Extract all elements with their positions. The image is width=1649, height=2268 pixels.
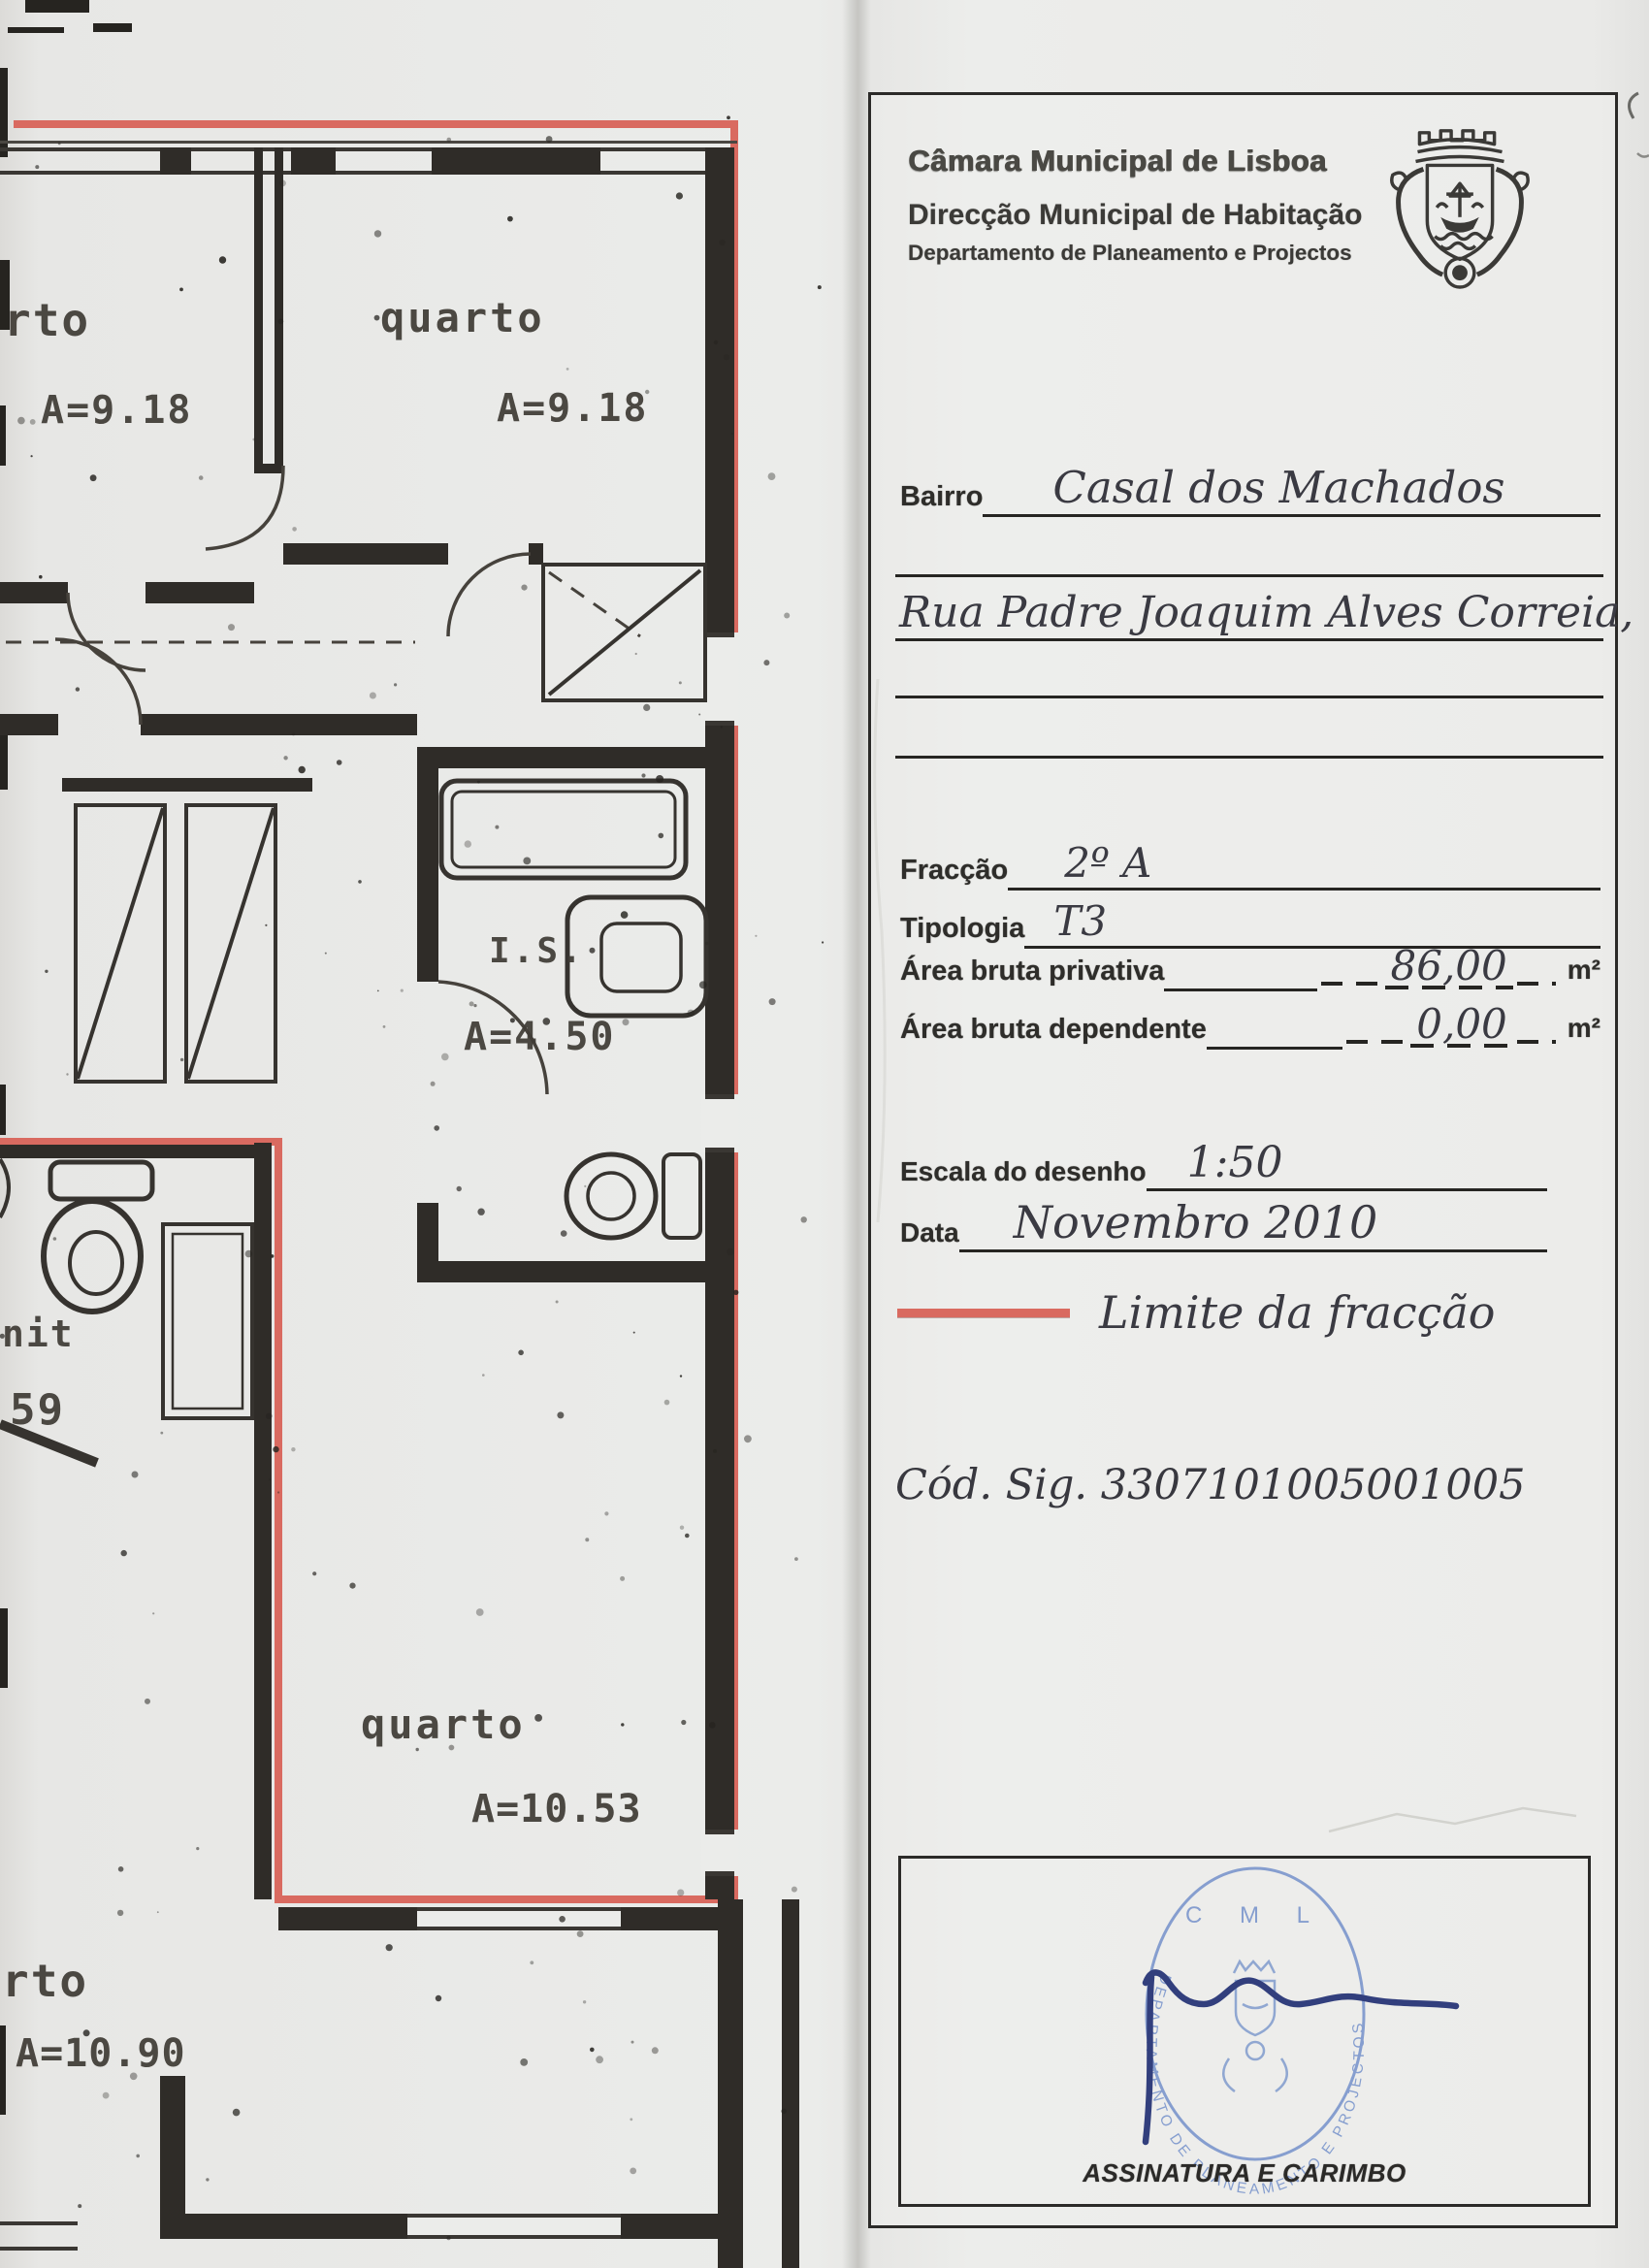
fraccao-line: 2º A <box>1008 833 1600 891</box>
dash-segment <box>1346 1040 1406 1044</box>
escala-label: Escala do desenho <box>900 1156 1147 1191</box>
blank-line <box>895 696 1603 698</box>
stamp-org-abbrev: C M L <box>1185 1902 1325 1928</box>
field-address: Rua Padre Joaquim Alves Correia, nº 6 <box>895 584 1603 641</box>
room-label: nit <box>2 1312 75 1355</box>
room-label: rto <box>2 1955 88 2007</box>
data-label: Data <box>900 1217 959 1252</box>
area-privativa-value: 86,00 <box>1385 942 1513 991</box>
cod-sig: Cód. Sig. 3307101005001005 <box>895 1461 1525 1509</box>
blank-line <box>895 756 1603 759</box>
room-label: I.S. <box>489 931 585 971</box>
paper-fold-shadow <box>842 0 871 2268</box>
dash-segment <box>1517 1040 1556 1044</box>
signature-caption: ASSINATURA E CARIMBO <box>901 2158 1588 2188</box>
fraccao-value: 2º A <box>1064 839 1151 887</box>
area-dependente-line <box>1207 998 1342 1050</box>
room-area: A=10.90 <box>16 2031 186 2076</box>
area-dependente-label: Área bruta dependente <box>900 1014 1207 1050</box>
field-area-dependente: Área bruta dependente 0,00 m² <box>900 998 1600 1050</box>
bairro-label: Bairro <box>900 481 983 517</box>
lisbon-coat-of-arms-icon <box>1374 101 1546 303</box>
area-dependente-unit: m² <box>1568 1013 1600 1050</box>
signature-stamp-box: C M L DEPARTAMENTO DE PLANEAMENTO E PROJ… <box>898 1856 1591 2207</box>
org-name: Câmara Municipal de Lisboa <box>908 144 1362 178</box>
org-direction: Direcção Municipal de Habitação <box>908 199 1362 232</box>
legend-label: Limite da fracção <box>1099 1286 1496 1339</box>
pen-mark <box>1637 153 1649 157</box>
field-area-privativa: Área bruta privativa 86,00 m² <box>900 940 1600 991</box>
bathroom-fixtures <box>441 781 706 1238</box>
room-area: A=9.18 <box>497 386 649 431</box>
room-label: rto <box>4 294 90 346</box>
fraccao-label: Fracção <box>900 855 1008 891</box>
bairro-line: Casal dos Machados <box>983 460 1600 517</box>
field-data: Data Novembro 2010 <box>900 1195 1547 1252</box>
address-value: Rua Padre Joaquim Alves Correia, nº 6 <box>899 588 1649 637</box>
area-privativa-label: Área bruta privativa <box>900 956 1164 991</box>
area-privativa-unit: m² <box>1568 955 1600 991</box>
room-area: 59 <box>10 1385 65 1435</box>
form-panel: Câmara Municipal de Lisboa Direcção Muni… <box>868 92 1618 2228</box>
room-label: quarto <box>361 1701 526 1748</box>
floor-plan-drawing: rto A=9.18 quarto A=9.18 I.S. A=4.50 nit… <box>0 0 854 2268</box>
field-fraccao: Fracção 2º A <box>900 833 1600 891</box>
dash-segment <box>1321 982 1381 986</box>
signature-stroke <box>1146 1972 1456 2142</box>
blank-line <box>895 574 1603 577</box>
org-department: Departamento de Planeamento e Projectos <box>908 241 1362 266</box>
dash-segment <box>1517 982 1556 986</box>
room-label: quarto <box>380 294 545 341</box>
area-privativa-line <box>1164 940 1316 991</box>
tipologia-value: T3 <box>1053 897 1107 945</box>
org-header: Câmara Municipal de Lisboa Direcção Muni… <box>908 144 1362 266</box>
cml-stamp-icon: C M L DEPARTAMENTO DE PLANEAMENTO E PROJ… <box>1143 1868 1368 2198</box>
escala-value: 1:50 <box>1187 1138 1283 1187</box>
room-area: A=10.53 <box>471 1787 642 1831</box>
stamp-and-signature: C M L DEPARTAMENTO DE PLANEAMENTO E PROJ… <box>901 1859 1592 2208</box>
escala-line: 1:50 <box>1147 1134 1547 1191</box>
room-area: A=4.50 <box>464 1015 616 1059</box>
field-escala: Escala do desenho 1:50 <box>900 1134 1547 1191</box>
area-dependente-value: 0,00 <box>1410 1000 1513 1050</box>
red-limit-line-icon <box>897 1309 1070 1317</box>
scanned-floorplan-sheet: rto A=9.18 quarto A=9.18 I.S. A=4.50 nit… <box>0 0 1649 2268</box>
bairro-value: Casal dos Machados <box>1052 462 1504 513</box>
walls <box>0 141 799 2268</box>
room-area: A=9.18 <box>41 388 193 433</box>
address-line: Rua Padre Joaquim Alves Correia, nº 6 <box>895 584 1603 641</box>
pen-mark <box>1630 93 1638 118</box>
field-bairro: Bairro Casal dos Machados <box>900 460 1600 517</box>
data-value: Novembro 2010 <box>1014 1196 1378 1248</box>
legend-limite: Limite da fracção <box>897 1286 1496 1339</box>
data-line: Novembro 2010 <box>959 1195 1547 1252</box>
